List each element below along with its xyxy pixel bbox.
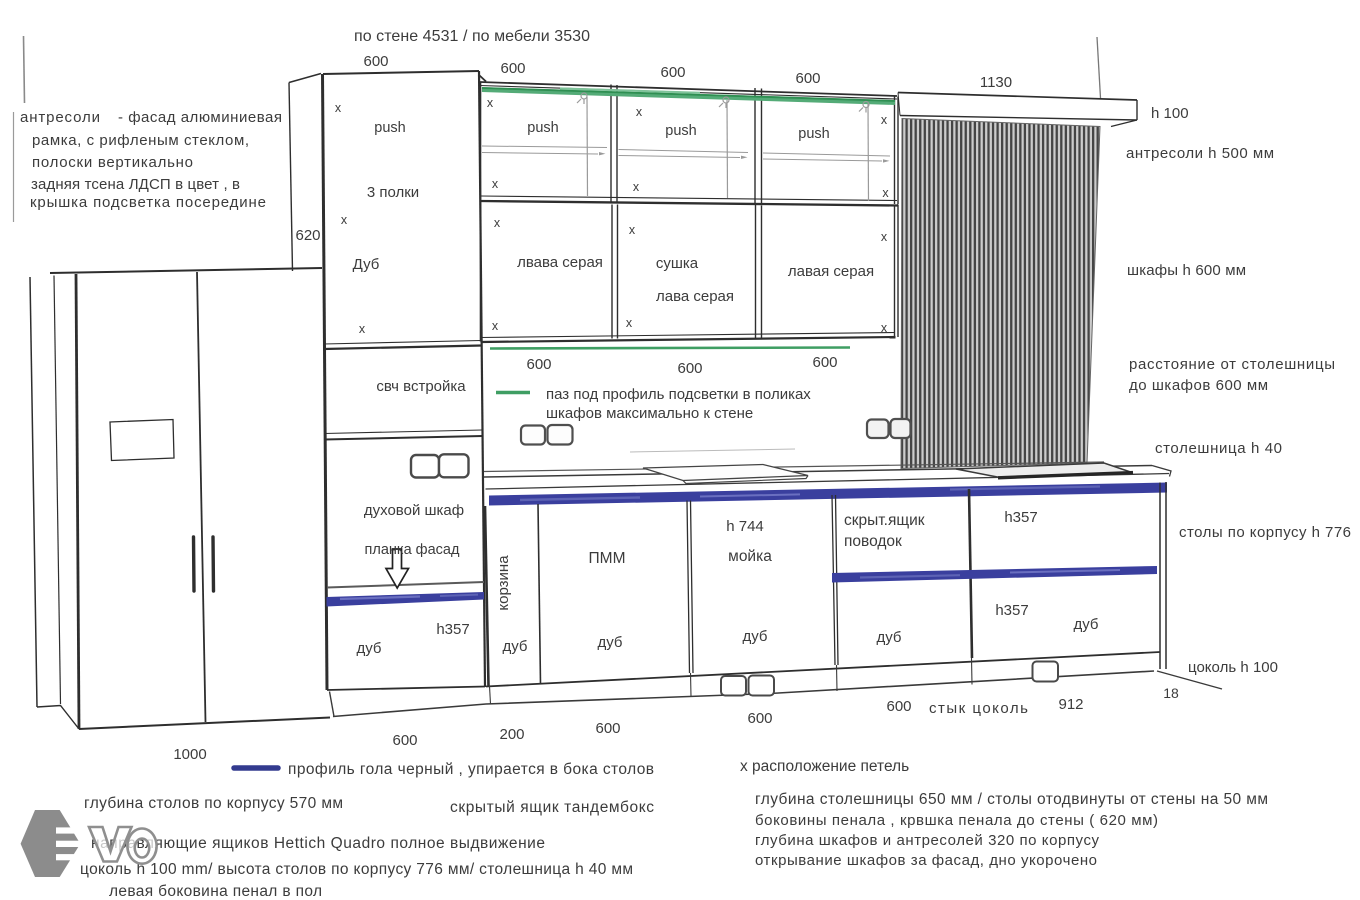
svg-text:рамка, с рифленым стеклом,: рамка, с рифленым стеклом, bbox=[32, 132, 249, 149]
svg-text:600: 600 bbox=[747, 710, 772, 727]
svg-text:столешница h 40: столешница h 40 bbox=[1155, 440, 1282, 457]
svg-text:push: push bbox=[527, 120, 558, 136]
svg-text:600: 600 bbox=[886, 698, 911, 715]
svg-text:x: x bbox=[881, 113, 888, 127]
svg-text:профиль гола черный , упирае: профиль гола черный , упирается в бока с… bbox=[288, 761, 654, 778]
svg-text:направляющие ящиков Hettich Qu: направляющие ящиков Hettich Quadro полно… bbox=[91, 835, 545, 852]
svg-text:600: 600 bbox=[526, 356, 551, 373]
svg-text:ПММ: ПММ bbox=[589, 550, 626, 567]
svg-text:дуб: дуб bbox=[742, 628, 767, 645]
svg-text:1130: 1130 bbox=[980, 74, 1012, 91]
svg-text:глубина столов по корпусу 570: глубина столов по корпусу 570 мм bbox=[84, 795, 343, 812]
svg-text:- фасад алюминиевая: - фасад алюминиевая bbox=[118, 109, 282, 126]
svg-text:по стене 4531 / по мебели 3530: по стене 4531 / по мебели 3530 bbox=[354, 28, 590, 45]
svg-text:дуб: дуб bbox=[597, 634, 622, 651]
svg-text:дуб: дуб bbox=[1073, 616, 1098, 633]
svg-text:дуб: дуб bbox=[876, 629, 901, 646]
svg-text:антресоли: антресоли bbox=[20, 109, 100, 126]
svg-text:3 полки: 3 полки bbox=[367, 184, 419, 201]
svg-text:задняя тсена ЛДСП в цвет , в: задняя тсена ЛДСП в цвет , в bbox=[31, 176, 240, 193]
svg-text:1000: 1000 bbox=[173, 746, 206, 763]
svg-text:push: push bbox=[798, 126, 829, 142]
svg-text:x расположение петель: x расположение петель bbox=[740, 758, 909, 775]
svg-text:дуб: дуб bbox=[502, 638, 527, 655]
svg-text:цоколь h 100 mm/ высота столов: цоколь h 100 mm/ высота столов по корпус… bbox=[80, 861, 633, 878]
svg-text:push: push bbox=[374, 120, 405, 136]
svg-text:x: x bbox=[492, 177, 499, 191]
svg-text:x: x bbox=[881, 321, 888, 335]
svg-text:x: x bbox=[636, 105, 643, 119]
svg-text:600: 600 bbox=[677, 360, 702, 377]
svg-text:Дуб: Дуб bbox=[353, 256, 380, 273]
svg-text:600: 600 bbox=[660, 64, 685, 81]
svg-text:x: x bbox=[487, 96, 494, 110]
svg-text:сушка: сушка bbox=[656, 255, 699, 272]
svg-text:x: x bbox=[494, 216, 501, 230]
svg-text:push: push bbox=[665, 123, 696, 139]
svg-text:корзина: корзина bbox=[495, 555, 512, 611]
svg-text:600: 600 bbox=[363, 53, 388, 70]
svg-text:x: x bbox=[359, 322, 366, 336]
svg-text:912: 912 bbox=[1058, 696, 1083, 713]
svg-text:антресоли h 500 мм: антресоли h 500 мм bbox=[1126, 145, 1274, 162]
svg-text:лавая серая: лавая серая bbox=[788, 263, 874, 280]
svg-text:h 100: h 100 bbox=[1151, 105, 1189, 122]
svg-text:h357: h357 bbox=[436, 621, 469, 638]
svg-text:глубина шкафов и антресолей 32: глубина шкафов и антресолей 320 по корпу… bbox=[755, 832, 1100, 849]
svg-text:лвава серая: лвава серая bbox=[517, 254, 603, 271]
svg-text:h 744: h 744 bbox=[726, 518, 764, 535]
svg-text:левая боковина пенал в пол: левая боковина пенал в пол bbox=[109, 883, 322, 900]
svg-text:поводок: поводок bbox=[844, 533, 902, 550]
svg-text:открывание шкафов за фасад, дн: открывание шкафов за фасад, дно укорочен… bbox=[755, 852, 1097, 869]
svg-text:лава серая: лава серая bbox=[656, 288, 734, 305]
svg-text:18: 18 bbox=[1163, 685, 1179, 701]
svg-text:x: x bbox=[492, 319, 499, 333]
svg-text:мойка: мойка bbox=[728, 548, 772, 565]
svg-text:x: x bbox=[882, 186, 889, 200]
svg-text:600: 600 bbox=[812, 354, 837, 371]
svg-text:скрытый ящик тандембокс: скрытый ящик тандембокс bbox=[450, 799, 654, 816]
svg-text:цоколь h 100: цоколь h 100 bbox=[1188, 659, 1278, 676]
svg-text:x: x bbox=[633, 180, 640, 194]
svg-text:стык цоколь: стык цоколь bbox=[929, 700, 1028, 717]
svg-text:шкафы h 600 мм: шкафы h 600 мм bbox=[1127, 262, 1246, 279]
svg-text:600: 600 bbox=[500, 60, 525, 77]
svg-text:расстояние от столешницы: расстояние от столешницы bbox=[1129, 356, 1335, 373]
svg-text:боковины пенала , крвшка пенал: боковины пенала , крвшка пенала до стены… bbox=[755, 812, 1158, 829]
svg-text:скрыт.ящик: скрыт.ящик bbox=[844, 512, 925, 529]
svg-text:x: x bbox=[626, 316, 633, 330]
svg-text:свч встройка: свч встройка bbox=[376, 378, 466, 395]
svg-text:620: 620 bbox=[295, 227, 320, 244]
svg-text:h357: h357 bbox=[995, 602, 1028, 619]
svg-text:200: 200 bbox=[499, 726, 524, 743]
svg-text:планка фасад: планка фасад bbox=[365, 542, 460, 558]
svg-text:глубина столешницы 650 мм / ст: глубина столешницы 650 мм / столы отодви… bbox=[755, 791, 1268, 808]
svg-text:столы по корпусу h 776: столы по корпусу h 776 bbox=[1179, 524, 1351, 541]
svg-text:шкафов максимально к стене: шкафов максимально к стене bbox=[546, 405, 753, 422]
svg-text:x: x bbox=[341, 213, 348, 227]
svg-text:дуб: дуб bbox=[356, 640, 381, 657]
svg-text:крышка подсветка посередине: крышка подсветка посередине bbox=[30, 194, 266, 211]
svg-text:паз под профиль подсветки в по: паз под профиль подсветки в поликах bbox=[546, 386, 811, 403]
svg-text:x: x bbox=[629, 223, 636, 237]
svg-text:x: x bbox=[881, 230, 888, 244]
svg-text:духовой шкаф: духовой шкаф bbox=[364, 502, 464, 519]
svg-text:600: 600 bbox=[392, 732, 417, 749]
svg-text:600: 600 bbox=[795, 70, 820, 87]
svg-text:полоски вертикально: полоски вертикально bbox=[32, 154, 193, 171]
svg-text:h357: h357 bbox=[1004, 509, 1037, 526]
svg-text:600: 600 bbox=[595, 720, 620, 737]
svg-text:до шкафов 600 мм: до шкафов 600 мм bbox=[1129, 377, 1268, 394]
svg-text:x: x bbox=[335, 101, 342, 115]
